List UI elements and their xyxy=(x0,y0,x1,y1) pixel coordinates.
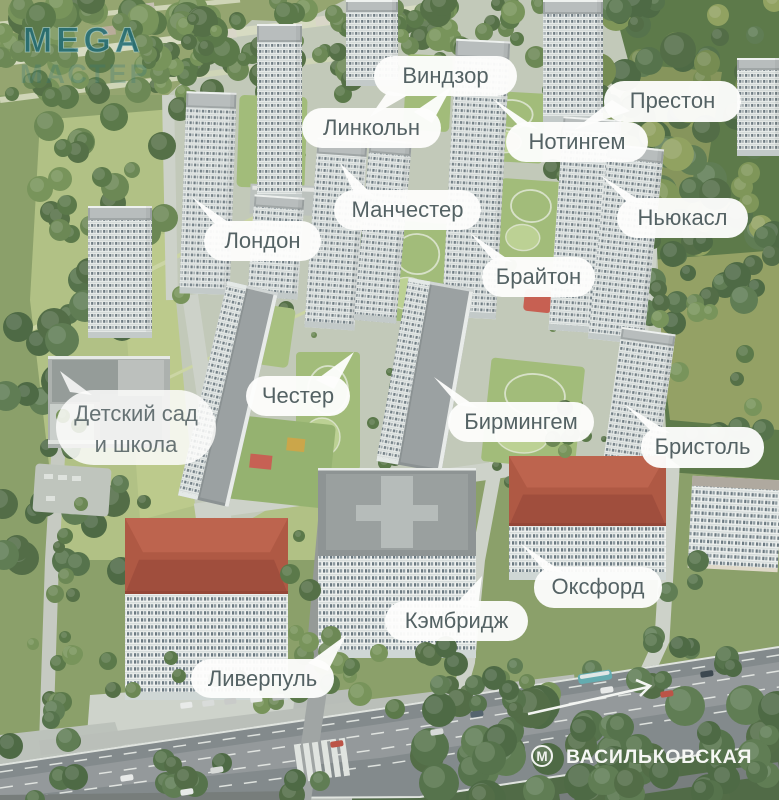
svg-text:Честер: Честер xyxy=(262,383,334,408)
svg-text:Ньюкасл: Ньюкасл xyxy=(637,205,727,230)
svg-text:Кэмбридж: Кэмбридж xyxy=(405,608,509,633)
svg-text:Оксфорд: Оксфорд xyxy=(552,574,645,599)
svg-text:Линкольн: Линкольн xyxy=(323,115,420,140)
svg-text:Манчестер: Манчестер xyxy=(352,197,464,222)
svg-text:Лондон: Лондон xyxy=(224,228,300,253)
svg-text:Нотингем: Нотингем xyxy=(528,129,625,154)
svg-text:Детский сад: Детский сад xyxy=(74,401,198,426)
svg-text:Виндзор: Виндзор xyxy=(402,63,488,88)
svg-text:Брайтон: Брайтон xyxy=(496,264,581,289)
svg-text:Престон: Престон xyxy=(630,88,716,113)
svg-text:Бирмингем: Бирмингем xyxy=(464,409,577,434)
svg-text:Бристоль: Бристоль xyxy=(655,434,751,459)
svg-text:и школа: и школа xyxy=(95,432,179,457)
svg-text:Ливерпуль: Ливерпуль xyxy=(208,666,317,691)
